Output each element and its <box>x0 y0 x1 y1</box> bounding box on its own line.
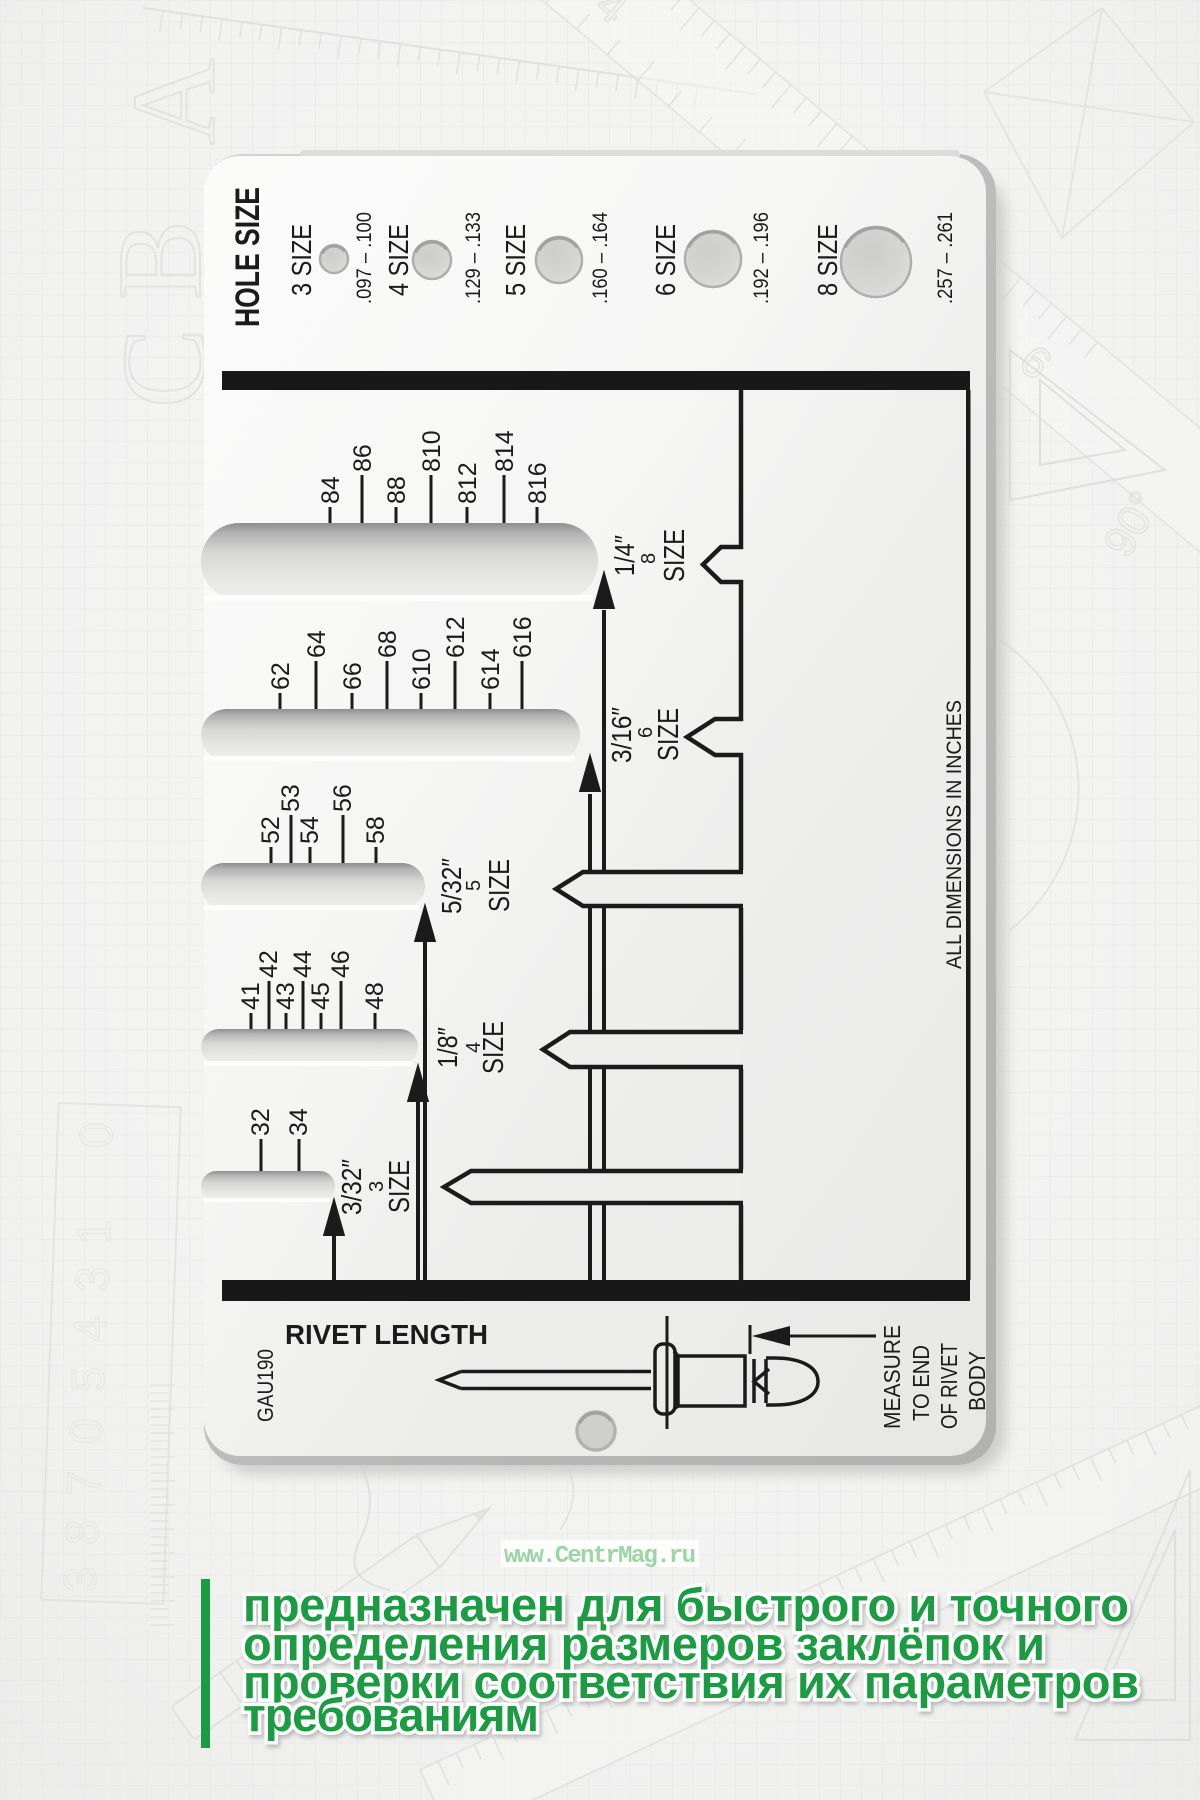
svg-text:56: 56 <box>329 784 357 812</box>
svg-text:6 SIZE: 6 SIZE <box>650 224 681 296</box>
svg-text:810: 810 <box>418 430 446 472</box>
svg-text:7: 7 <box>58 1470 110 1496</box>
svg-text:48: 48 <box>361 982 389 1010</box>
svg-text:41: 41 <box>237 982 265 1010</box>
svg-text:A: A <box>107 58 240 145</box>
svg-text:64: 64 <box>303 630 331 658</box>
svg-text:1: 1 <box>68 1219 120 1245</box>
svg-text:5: 5 <box>463 880 485 891</box>
svg-text:610: 610 <box>408 648 436 690</box>
svg-text:.192 – .196: .192 – .196 <box>750 212 773 304</box>
svg-text:58: 58 <box>362 816 390 844</box>
svg-text:.129 – .133: .129 – .133 <box>462 212 485 304</box>
svg-text:0: 0 <box>60 1418 112 1444</box>
svg-text:5: 5 <box>62 1366 114 1392</box>
svg-text:44: 44 <box>289 950 317 978</box>
svg-text:1/4″: 1/4″ <box>609 535 640 576</box>
svg-text:3/16″: 3/16″ <box>606 707 637 763</box>
svg-text:8 SIZE: 8 SIZE <box>812 224 843 296</box>
svg-text:BODY: BODY <box>964 1351 990 1411</box>
svg-text:TO END: TO END <box>908 1345 934 1421</box>
svg-text:www.CentrMag.ru: www.CentrMag.ru <box>504 1543 696 1570</box>
svg-text:требованиям: требованиям <box>243 1688 539 1741</box>
svg-text:46: 46 <box>327 950 355 978</box>
svg-text:SIZE: SIZE <box>659 529 691 582</box>
svg-text:43: 43 <box>272 982 300 1010</box>
svg-text:62: 62 <box>267 662 295 690</box>
svg-text:45: 45 <box>307 982 335 1010</box>
svg-text:8: 8 <box>56 1519 108 1545</box>
svg-text:616: 616 <box>509 616 537 658</box>
svg-text:.097 – .100: .097 – .100 <box>353 212 376 304</box>
svg-text:3/32″: 3/32″ <box>336 1159 367 1215</box>
svg-text:GAU190: GAU190 <box>253 1349 278 1422</box>
svg-text:614: 614 <box>477 648 505 690</box>
svg-text:42: 42 <box>255 950 283 978</box>
svg-text:RIVET LENGTH: RIVET LENGTH <box>285 1319 488 1350</box>
svg-text:84: 84 <box>317 476 345 504</box>
svg-text:66: 66 <box>339 662 367 690</box>
svg-text:8: 8 <box>638 553 660 564</box>
svg-text:SIZE: SIZE <box>653 708 685 761</box>
svg-text:54: 54 <box>296 816 324 844</box>
svg-text:53: 53 <box>277 784 305 812</box>
svg-text:SIZE: SIZE <box>484 859 516 912</box>
svg-text:34: 34 <box>285 1108 313 1136</box>
svg-text:816: 816 <box>524 462 552 504</box>
svg-text:OF RIVET: OF RIVET <box>936 1343 962 1429</box>
svg-text:.160 – .164: .160 – .164 <box>589 212 612 304</box>
svg-text:86: 86 <box>349 444 377 472</box>
svg-text:1/8″: 1/8″ <box>432 1027 463 1068</box>
svg-text:4: 4 <box>64 1316 116 1342</box>
svg-text:0: 0 <box>70 1122 122 1148</box>
svg-text:SIZE: SIZE <box>384 1160 416 1213</box>
svg-text:.257 – .261: .257 – .261 <box>934 212 957 304</box>
svg-text:MEASURE: MEASURE <box>879 1325 905 1429</box>
svg-text:612: 612 <box>442 616 470 658</box>
svg-text:68: 68 <box>374 630 402 658</box>
svg-text:3: 3 <box>54 1566 106 1592</box>
svg-text:4 SIZE: 4 SIZE <box>383 224 414 296</box>
svg-text:ALL DIMENSIONS IN INCHES: ALL DIMENSIONS IN INCHES <box>943 700 966 969</box>
svg-text:52: 52 <box>257 816 285 844</box>
svg-text:32: 32 <box>247 1108 275 1136</box>
svg-text:5 SIZE: 5 SIZE <box>500 224 531 296</box>
svg-text:88: 88 <box>383 476 411 504</box>
svg-text:SIZE: SIZE <box>478 1021 510 1074</box>
svg-text:HOLE SIZE: HOLE SIZE <box>229 187 267 327</box>
svg-text:812: 812 <box>454 462 482 504</box>
svg-text:814: 814 <box>491 430 519 472</box>
svg-text:3 SIZE: 3 SIZE <box>286 224 317 296</box>
svg-text:3: 3 <box>66 1266 118 1292</box>
